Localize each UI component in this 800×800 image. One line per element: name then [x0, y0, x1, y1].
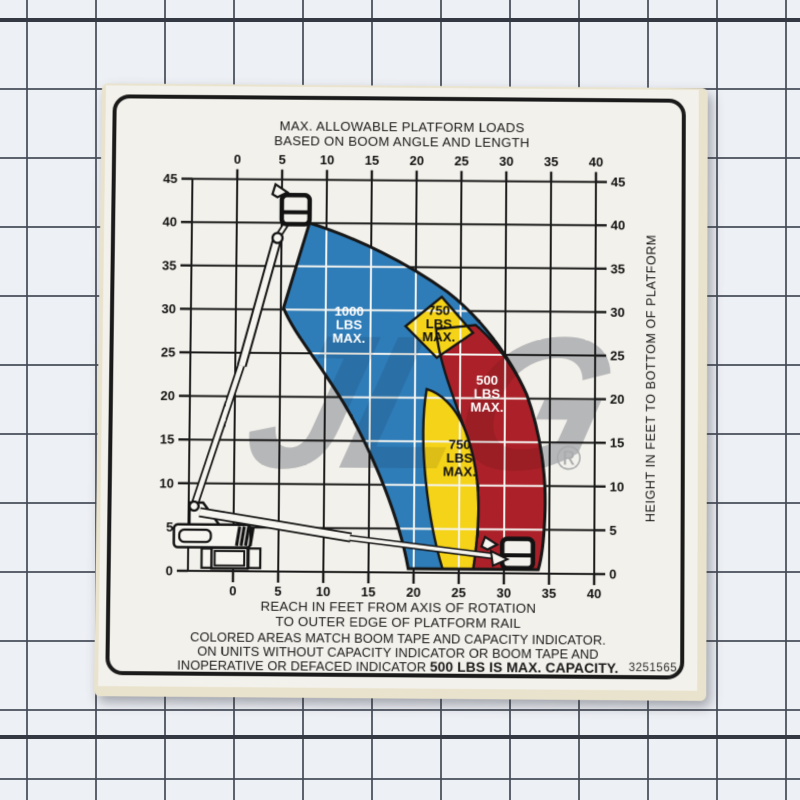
boom-pivot-joint	[190, 502, 199, 511]
svg-text:40: 40	[589, 154, 603, 169]
chart-title: MAX. ALLOWABLE PLATFORM LOADS BASED ON B…	[105, 118, 699, 151]
svg-text:0: 0	[234, 152, 241, 167]
svg-text:35: 35	[610, 261, 624, 276]
svg-text:35: 35	[542, 586, 557, 601]
decal-label: JLG®005510101515202025253030353540400055…	[98, 85, 699, 690]
svg-text:30: 30	[161, 301, 176, 316]
x-axis-label: REACH IN FEET FROM AXIS OF ROTATION TO O…	[99, 598, 698, 632]
svg-text:35: 35	[544, 154, 558, 169]
zone-1000-label: 1000LBSMAX.	[332, 304, 365, 346]
svg-text:45: 45	[611, 175, 625, 190]
svg-text:25: 25	[451, 585, 466, 600]
svg-text:15: 15	[365, 153, 380, 168]
svg-text:30: 30	[610, 305, 625, 320]
svg-text:20: 20	[610, 392, 625, 407]
svg-text:15: 15	[610, 435, 625, 450]
caption-line3-bold: 500 LBS IS MAX. CAPACITY.	[430, 659, 619, 676]
svg-text:10: 10	[159, 475, 174, 490]
part-number: 3251565	[629, 662, 678, 674]
svg-text:25: 25	[161, 345, 176, 360]
photo-background: JLG®005510101515202025253030353540400055…	[0, 0, 800, 800]
y-axis-label: HEIGHT IN FEET TO BOTTOM OF PLATFORM	[643, 234, 658, 522]
svg-text:10: 10	[316, 584, 331, 599]
svg-text:35: 35	[162, 258, 177, 273]
boom-elbow-joint	[272, 233, 282, 243]
caption: COLORED AREAS MATCH BOOM TAPE AND CAPACI…	[98, 630, 697, 677]
svg-text:20: 20	[409, 153, 424, 168]
svg-text:40: 40	[611, 218, 625, 233]
engine-cover	[179, 530, 211, 543]
undercarriage-detail	[215, 551, 245, 566]
svg-text:40: 40	[587, 586, 602, 601]
platform-raised	[282, 195, 310, 224]
svg-text:0: 0	[166, 563, 173, 578]
wheel-right	[248, 548, 260, 568]
svg-text:5: 5	[279, 152, 286, 167]
caption-line3-regular: INOPERATIVE OR DEFACED INDICATOR	[177, 657, 430, 674]
svg-text:20: 20	[406, 585, 421, 600]
svg-text:5: 5	[274, 584, 281, 599]
svg-text:10: 10	[610, 479, 625, 494]
svg-text:30: 30	[496, 585, 511, 600]
svg-text:30: 30	[499, 154, 513, 169]
mat-rule-line-bottom	[0, 735, 800, 739]
svg-text:15: 15	[160, 432, 175, 447]
svg-text:15: 15	[361, 584, 376, 599]
capacity-decal-sticker: JLG®005510101515202025253030353540400055…	[94, 83, 708, 701]
svg-text:5: 5	[609, 523, 616, 538]
registered-trademark-icon: ®	[556, 439, 581, 477]
svg-text:45: 45	[163, 171, 178, 186]
svg-text:20: 20	[160, 388, 175, 403]
svg-text:40: 40	[162, 214, 177, 229]
svg-text:25: 25	[610, 348, 625, 363]
svg-text:10: 10	[320, 152, 335, 167]
svg-text:5: 5	[166, 519, 173, 534]
svg-text:0: 0	[229, 583, 236, 598]
svg-text:0: 0	[609, 567, 616, 582]
mat-rule-line-top	[0, 18, 800, 22]
svg-text:25: 25	[454, 153, 469, 168]
